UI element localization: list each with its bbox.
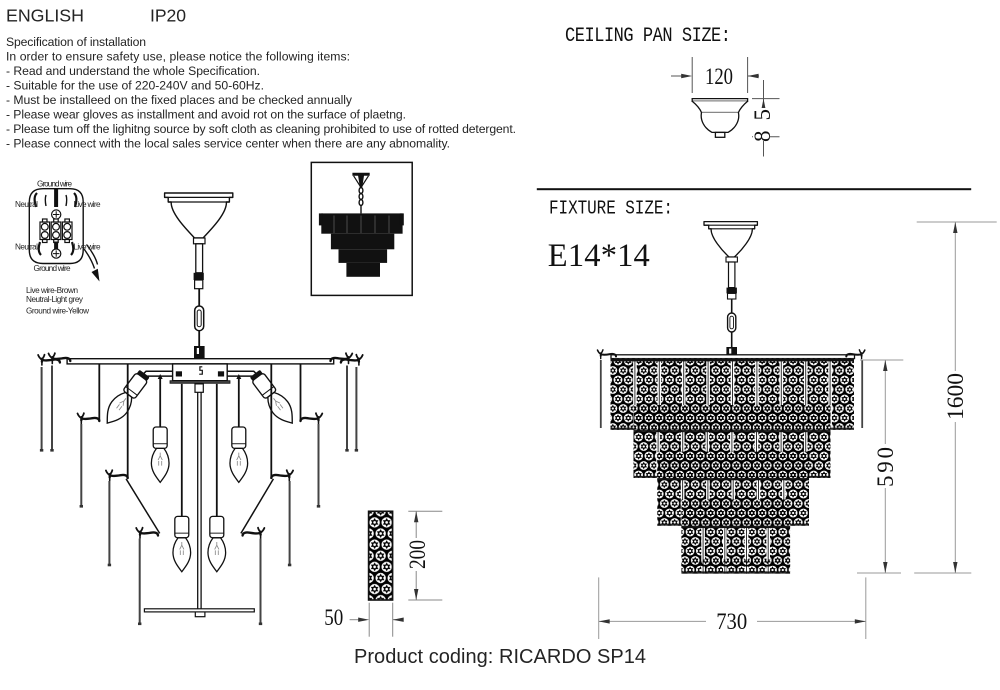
svg-text:- Suitable for the use of 220-: - Suitable for the use of 220-240V and 5… xyxy=(6,79,264,93)
svg-text:Neutral: Neutral xyxy=(15,243,38,252)
svg-text:50: 50 xyxy=(324,605,343,630)
svg-text:Ground wire: Ground wire xyxy=(37,180,72,189)
svg-text:Live wire: Live wire xyxy=(74,243,101,252)
svg-text:1600: 1600 xyxy=(943,373,968,420)
svg-text:Neutral: Neutral xyxy=(15,200,38,209)
svg-text:Ground wire-Yellow: Ground wire-Yellow xyxy=(26,306,89,315)
svg-text:Specification of installation: Specification of installation xyxy=(6,35,146,49)
svg-text:590: 590 xyxy=(873,447,898,487)
svg-text:730: 730 xyxy=(716,609,747,634)
svg-text:- Please wear gloves as instal: - Please wear gloves as installment and … xyxy=(6,108,406,122)
svg-text:- Please connect with the loca: - Please connect with the local sales se… xyxy=(6,137,450,151)
svg-text:120: 120 xyxy=(705,64,733,89)
svg-text:E14*14: E14*14 xyxy=(548,238,650,274)
svg-text:Ground wire: Ground wire xyxy=(34,264,71,273)
svg-text:IP20: IP20 xyxy=(150,6,186,26)
svg-text:Product coding: RICARDO SP14: Product coding: RICARDO SP14 xyxy=(354,646,646,668)
svg-text:Live wire-Brown: Live wire-Brown xyxy=(26,286,78,295)
svg-text:FIXTURE SIZE:: FIXTURE SIZE: xyxy=(549,198,673,220)
svg-text:Neutral-Light grey: Neutral-Light grey xyxy=(26,295,84,304)
svg-text:- Must be installeed on the fi: - Must be installeed on the fixed places… xyxy=(6,93,353,107)
svg-text:ENGLISH: ENGLISH xyxy=(6,6,84,26)
svg-text:In order to ensure safety use,: In order to ensure safety use, please no… xyxy=(6,50,350,64)
svg-text:CEILING PAN SIZE:: CEILING PAN SIZE: xyxy=(565,24,731,48)
svg-text:200: 200 xyxy=(405,540,430,569)
svg-text:- Please tum off the lighitng: - Please tum off the lighitng source by … xyxy=(6,122,516,136)
svg-text:- Read and understand the whol: - Read and understand the whole Specific… xyxy=(6,64,260,78)
svg-text:Live wire: Live wire xyxy=(74,200,101,209)
